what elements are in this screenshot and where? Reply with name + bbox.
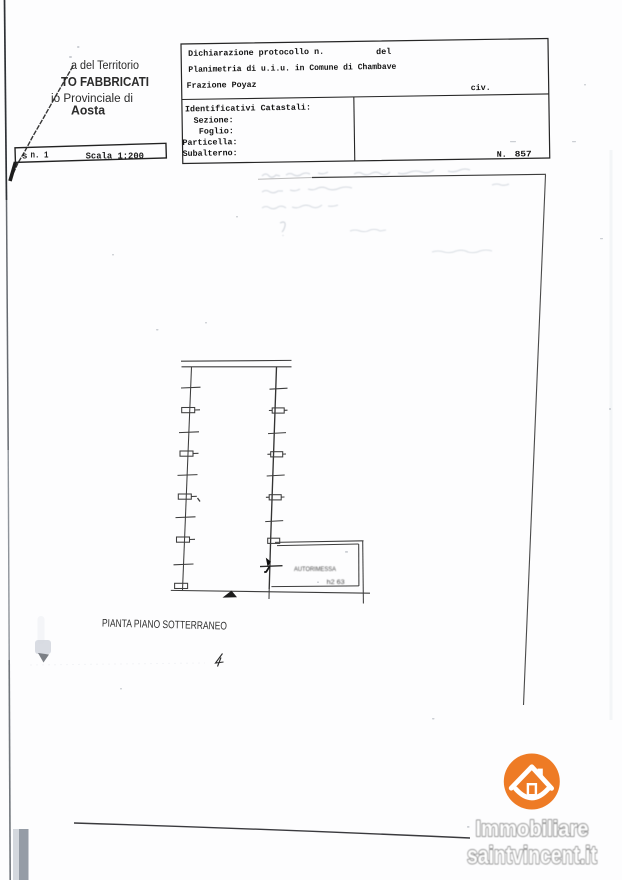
- svg-text:civ.: civ.: [471, 83, 491, 93]
- svg-text:AUTORIMESSA: AUTORIMESSA: [294, 566, 336, 573]
- svg-text:Immobiliare: Immobiliare: [476, 816, 589, 841]
- svg-text:N.: N.: [497, 150, 507, 160]
- svg-text:h2 63: h2 63: [327, 579, 346, 586]
- svg-text:del: del: [376, 47, 391, 57]
- svg-text:n. 1: n. 1: [31, 151, 49, 161]
- svg-text:Particella:: Particella:: [182, 137, 237, 148]
- svg-text:Dichiarazione protocollo n.: Dichiarazione protocollo n.: [188, 47, 324, 59]
- svg-text:a del Territorio: a del Territorio: [71, 60, 139, 72]
- svg-text:Foglio:: Foglio:: [199, 126, 234, 137]
- svg-text:Frazione Poyaz: Frazione Poyaz: [187, 80, 257, 91]
- svg-text:Aosta: Aosta: [71, 103, 106, 118]
- svg-text:Subalterno:: Subalterno:: [183, 148, 238, 159]
- svg-text:Identificativi Catastali:: Identificativi Catastali:: [185, 103, 311, 115]
- svg-text:saintvincent.it: saintvincent.it: [467, 842, 598, 870]
- svg-text:Scala 1:200: Scala 1:200: [86, 151, 145, 162]
- svg-text:s: s: [22, 152, 27, 162]
- svg-text:Sezione:: Sezione:: [194, 115, 234, 126]
- svg-text:857: 857: [515, 149, 532, 159]
- svg-text:TO FABBRICATI: TO FABBRICATI: [61, 75, 149, 89]
